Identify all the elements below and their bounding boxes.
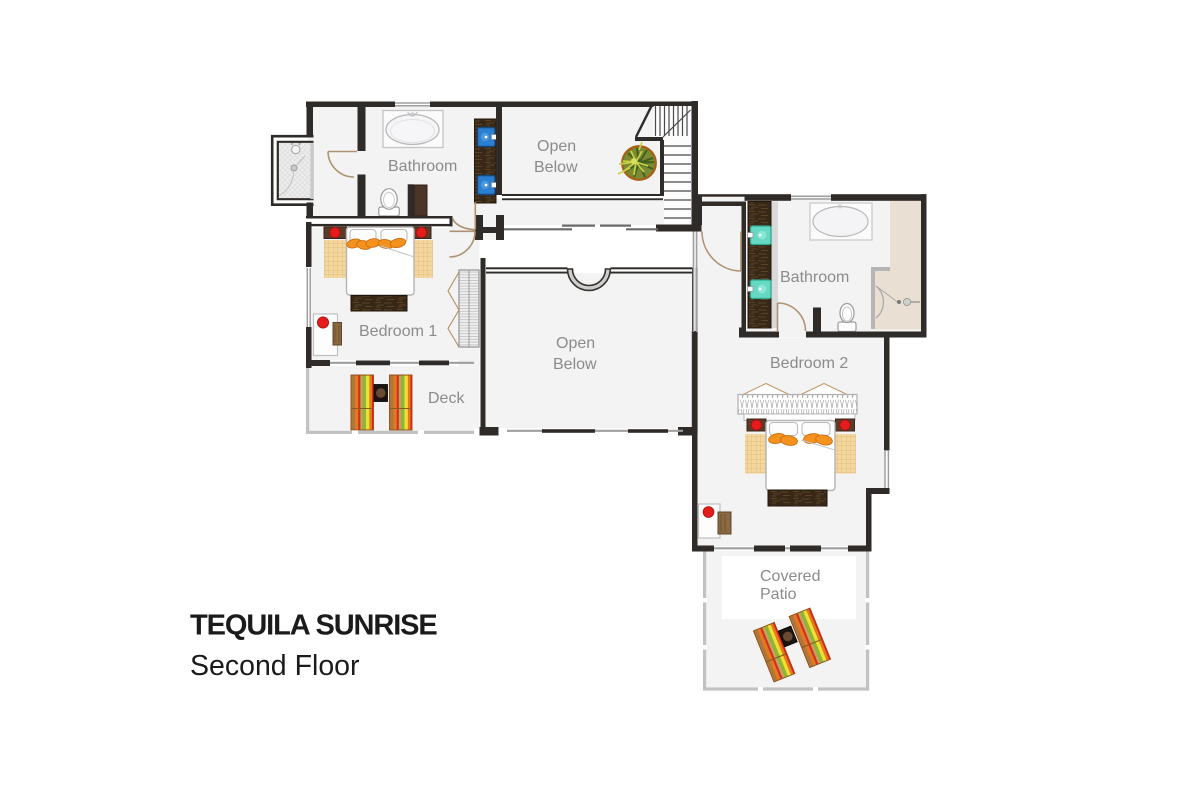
svg-text:Bedroom 2: Bedroom 2 — [770, 355, 848, 372]
svg-text:Deck: Deck — [428, 390, 465, 407]
svg-text:Open: Open — [537, 138, 576, 155]
svg-text:Covered: Covered — [760, 568, 820, 585]
svg-text:Bathroom: Bathroom — [388, 158, 457, 175]
svg-text:Bedroom 1: Bedroom 1 — [359, 323, 437, 340]
svg-text:TEQUILA SUNRISE: TEQUILA SUNRISE — [190, 610, 437, 642]
svg-text:Second Floor: Second Floor — [190, 650, 360, 682]
svg-text:Below: Below — [553, 356, 597, 373]
svg-text:Below: Below — [534, 159, 578, 176]
svg-text:Patio: Patio — [760, 586, 797, 603]
svg-text:Bathroom: Bathroom — [780, 269, 849, 286]
svg-text:Open: Open — [556, 335, 595, 352]
